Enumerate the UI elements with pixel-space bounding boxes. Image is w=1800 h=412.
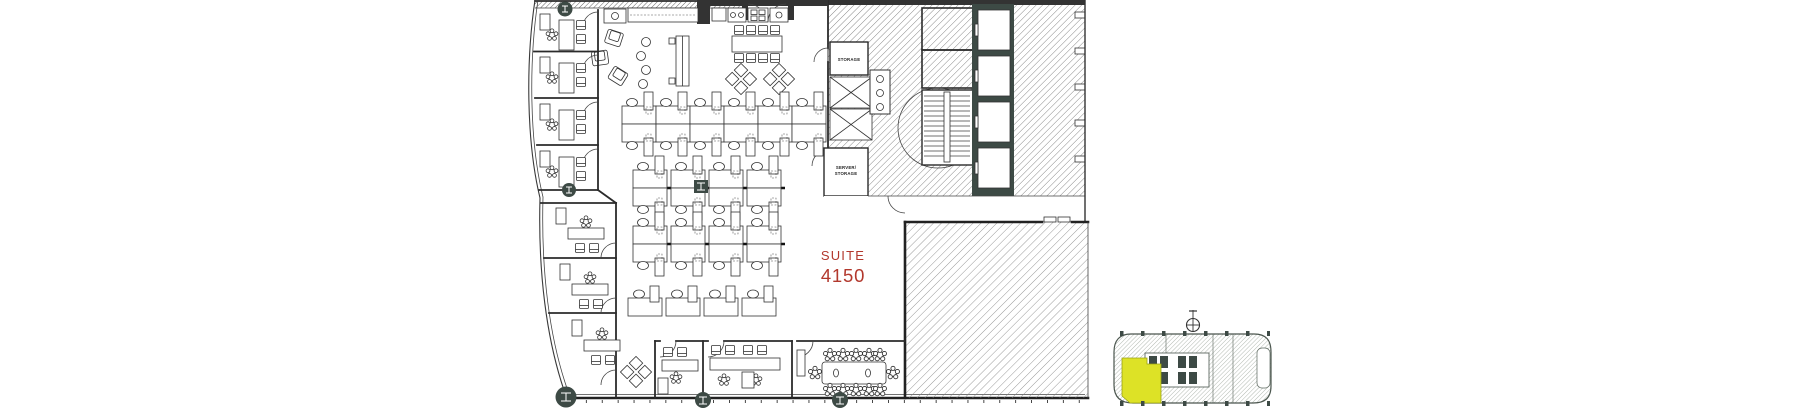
north-arrow-icon [1187, 310, 1200, 332]
storage-room-label: STORAGE [838, 57, 861, 62]
shaft-2 [830, 109, 872, 140]
core-kitchen-nook [870, 70, 890, 114]
office-7 [572, 320, 620, 365]
guest-chair [678, 348, 687, 357]
cafe-table [763, 63, 794, 94]
adjacent-space-hatch [905, 222, 1088, 398]
appliance [712, 8, 726, 21]
conference-table [822, 362, 886, 384]
storage-door-arc [814, 48, 828, 62]
shaft-1 [830, 77, 872, 108]
double-door-leaf [1044, 217, 1056, 222]
table-chair [759, 26, 768, 35]
conference-chair [850, 383, 863, 396]
elevator-cab [975, 148, 1010, 188]
guest-chair [744, 346, 753, 355]
open-office [622, 92, 826, 316]
office-2 [540, 57, 586, 93]
conference-chair [874, 348, 887, 361]
keyplan-east-room [1257, 348, 1270, 388]
core-area: STORAGE SERVER/ STORAGE [812, 0, 1088, 222]
guest-chair [758, 346, 767, 355]
pedestal [742, 372, 754, 388]
suite-number-text: 4150 [821, 265, 865, 286]
conference-chair [824, 348, 837, 361]
convector-unit [1075, 48, 1085, 54]
bench-foot [669, 38, 675, 44]
office-3 [540, 104, 586, 140]
server-room-label-line1: SERVER/ [836, 165, 857, 170]
guest-chair [726, 346, 735, 355]
private-offices-west [541, 190, 620, 398]
credenza [797, 350, 805, 376]
bench-row-2 [633, 156, 785, 220]
convector-unit [1075, 12, 1085, 18]
conference-chair [887, 366, 900, 379]
wall-jog [598, 190, 616, 203]
elevator-cab [975, 10, 1010, 50]
table-chair [759, 54, 768, 63]
office-6 [560, 264, 608, 309]
office-4 [540, 151, 586, 187]
shared-desk [710, 358, 780, 370]
copier [604, 9, 626, 23]
conference-chair [809, 366, 822, 379]
convector-unit [1075, 156, 1085, 162]
bench-foot [669, 78, 675, 84]
keyplan-suite-highlight [1122, 358, 1161, 403]
conference-chair [837, 348, 850, 361]
stool [637, 52, 646, 61]
elevator-cab [975, 56, 1010, 96]
kitchen-counter [604, 8, 788, 23]
task-chair [718, 374, 730, 385]
meeting-rooms-south [620, 341, 905, 398]
elevator-cab [975, 102, 1010, 142]
office-partitions [541, 203, 616, 313]
bench-row-1 [622, 92, 826, 156]
appliance [770, 8, 788, 22]
conference-chair [874, 383, 887, 396]
conference-chair [824, 383, 837, 396]
stair-stringer [944, 92, 950, 162]
communal-tables [725, 26, 794, 95]
communal-table [732, 36, 782, 52]
office-5 [556, 208, 604, 253]
stool [642, 66, 651, 75]
table-chair [771, 54, 780, 63]
vestibule-wall [697, 0, 828, 6]
floor-plan-page: STORAGE SERVER/ STORAGE [0, 0, 1800, 412]
table-chair [735, 54, 744, 63]
double-door-leaf [1058, 217, 1070, 222]
guest-chair [664, 348, 673, 357]
cafe-table [725, 63, 756, 94]
conference-chair [850, 348, 863, 361]
bench-row-3 [633, 212, 785, 276]
convector-unit [1075, 84, 1085, 90]
adjacent-space [905, 217, 1088, 398]
conference-room [797, 348, 899, 396]
floor-plan-canvas: STORAGE SERVER/ STORAGE [0, 0, 1800, 412]
entry-jamb [788, 0, 794, 20]
table-chair [747, 26, 756, 35]
convector-unit [1075, 120, 1085, 126]
suite-name-text: SUITE [821, 248, 865, 263]
armchair [604, 29, 624, 47]
meeting-desk [662, 360, 698, 371]
guest-chair [712, 346, 721, 355]
core-north-wall [828, 0, 1085, 5]
table-chair [771, 26, 780, 35]
cabinet [658, 378, 668, 394]
desk-row-4 [628, 286, 776, 316]
stool [639, 80, 648, 89]
task-chair [670, 372, 682, 383]
office-1 [540, 14, 586, 50]
server-room-label-line2: STORAGE [835, 171, 858, 176]
armchair [608, 66, 629, 86]
table-chair [735, 26, 744, 35]
lounge-area [591, 29, 689, 89]
private-offices-north [534, 10, 598, 190]
entry-jamb [697, 0, 710, 24]
main-floor-plan: STORAGE SERVER/ STORAGE [529, 0, 1088, 408]
suite-label: SUITE 4150 [821, 248, 865, 286]
table-chair [747, 54, 756, 63]
stool [642, 38, 651, 47]
key-plan [1114, 310, 1271, 404]
breakout-table [620, 356, 651, 387]
